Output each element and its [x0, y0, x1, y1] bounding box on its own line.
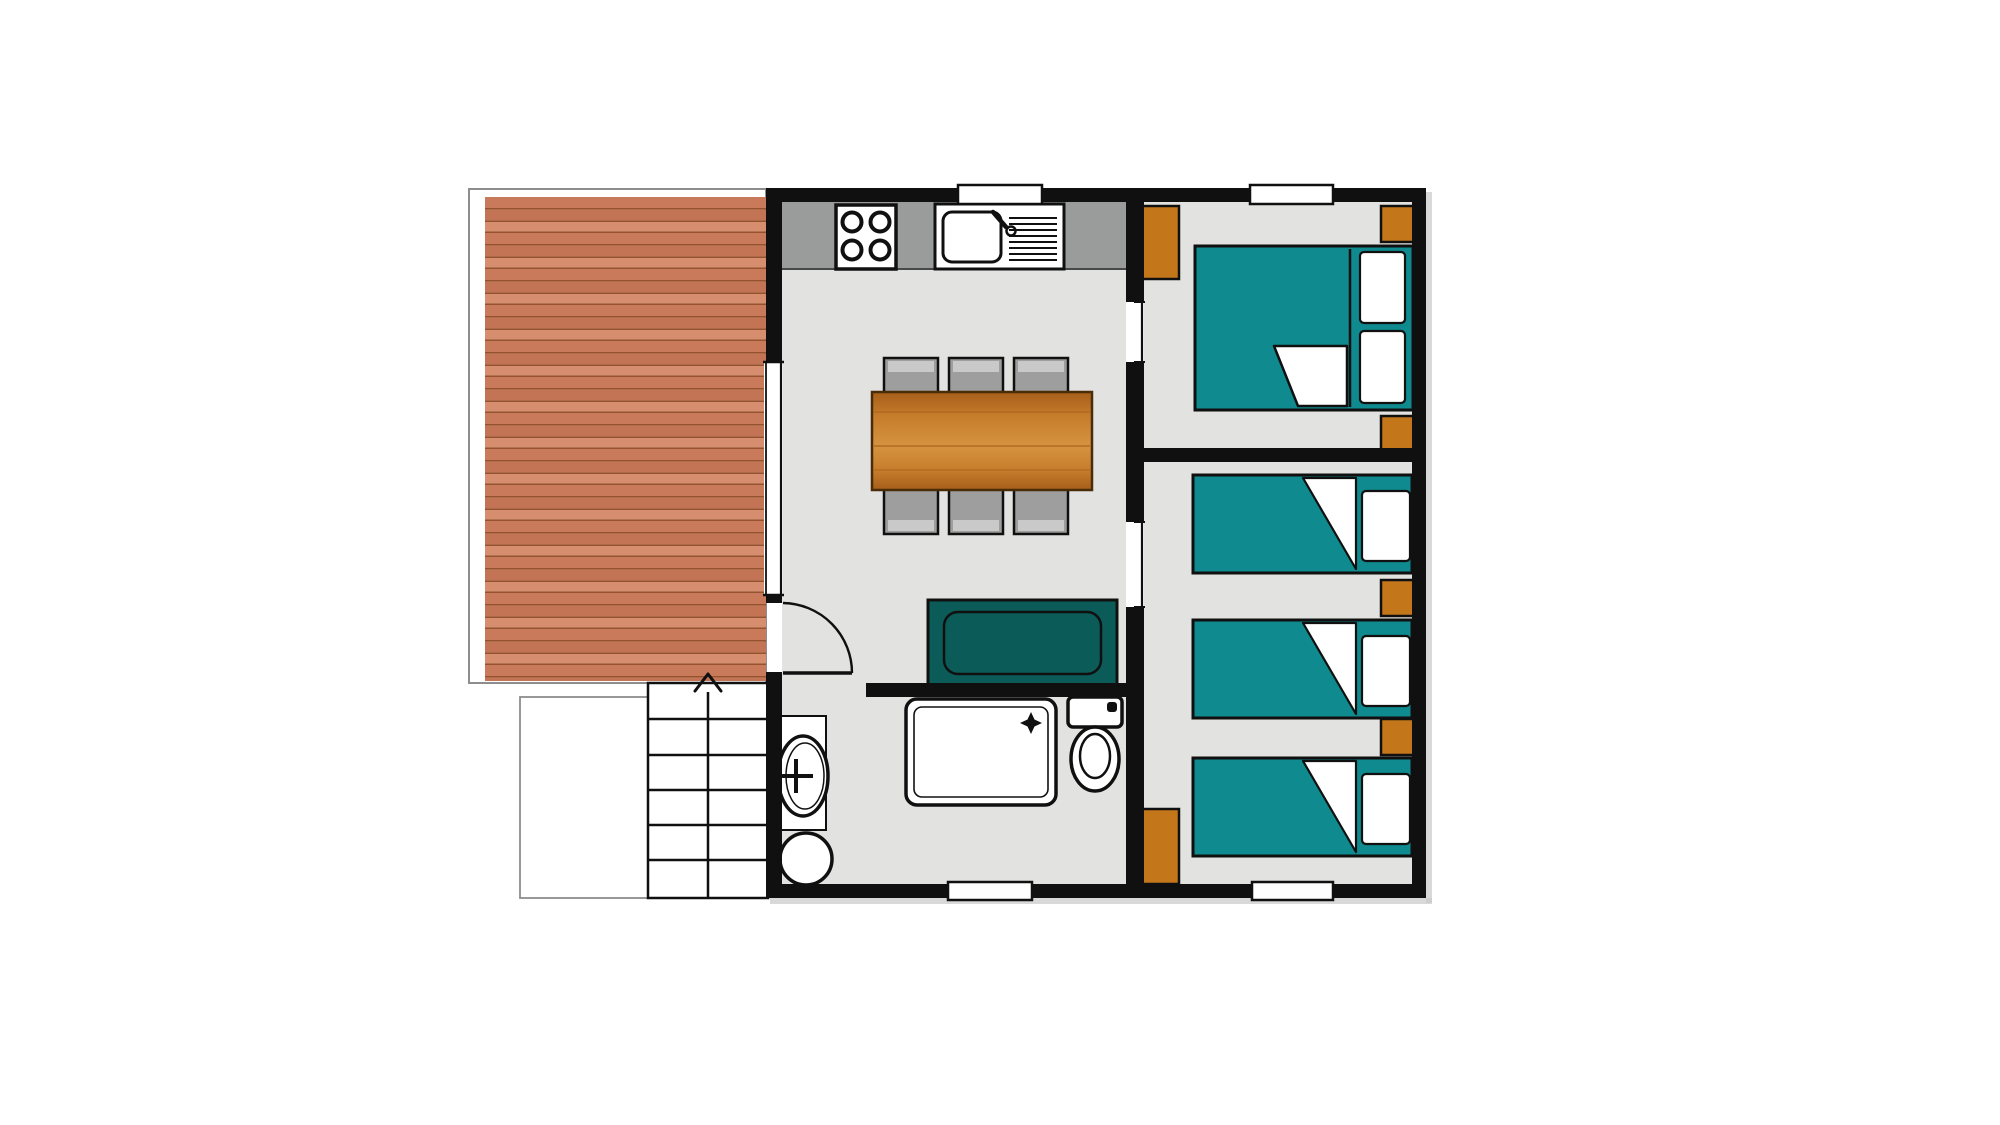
- floor-plan-page: [0, 0, 2000, 1125]
- pedestal-basin: [778, 716, 828, 830]
- window-kitchen: [958, 185, 1042, 204]
- double-bed: [1195, 246, 1413, 410]
- bedroom1-opening: [1134, 302, 1145, 362]
- bay-window-left: [763, 362, 784, 595]
- nightstand: [1381, 206, 1417, 242]
- water-heater: [780, 833, 832, 885]
- pillow: [1362, 491, 1410, 561]
- wall-bedroom-divider: [1126, 448, 1426, 462]
- window-bedroom1: [1250, 185, 1333, 204]
- wall-interior-b: [1126, 362, 1144, 522]
- dining-table: [872, 392, 1092, 490]
- bedroom2-opening: [1134, 522, 1145, 607]
- stairs: [648, 674, 768, 898]
- pillow: [1360, 331, 1405, 403]
- shower: [906, 699, 1056, 805]
- nightstand: [1381, 580, 1417, 616]
- sofa: [928, 600, 1117, 687]
- stair-landing: [520, 697, 648, 898]
- toilet-flush-button: [1107, 702, 1117, 712]
- kitchen-sink: [935, 204, 1064, 269]
- wall-interior-c: [1126, 607, 1144, 884]
- nightstand: [1381, 719, 1417, 755]
- pillow: [1360, 252, 1405, 323]
- toilet: [1068, 697, 1122, 791]
- wall-left-lower: [766, 672, 782, 898]
- pillow: [1362, 636, 1410, 706]
- wall-left-upper: [766, 188, 782, 362]
- wall-interior-a: [1126, 202, 1144, 302]
- window-bedroom2: [1252, 882, 1333, 900]
- floor-plan-svg: [0, 0, 2000, 1125]
- sink-basin: [943, 212, 1001, 262]
- wall-sofa-bathroom: [866, 683, 1126, 697]
- deck-planks: [485, 197, 766, 681]
- wall-right: [1412, 188, 1426, 898]
- shadow-right: [1426, 192, 1432, 903]
- pillow: [1362, 774, 1410, 844]
- single-bed: [1193, 475, 1412, 573]
- single-bed: [1193, 758, 1412, 856]
- hob-4-burners: [836, 205, 896, 269]
- single-bed: [1193, 620, 1412, 718]
- window-bathroom: [948, 882, 1032, 900]
- toilet-bowl: [1071, 727, 1119, 791]
- nightstand: [1381, 416, 1417, 452]
